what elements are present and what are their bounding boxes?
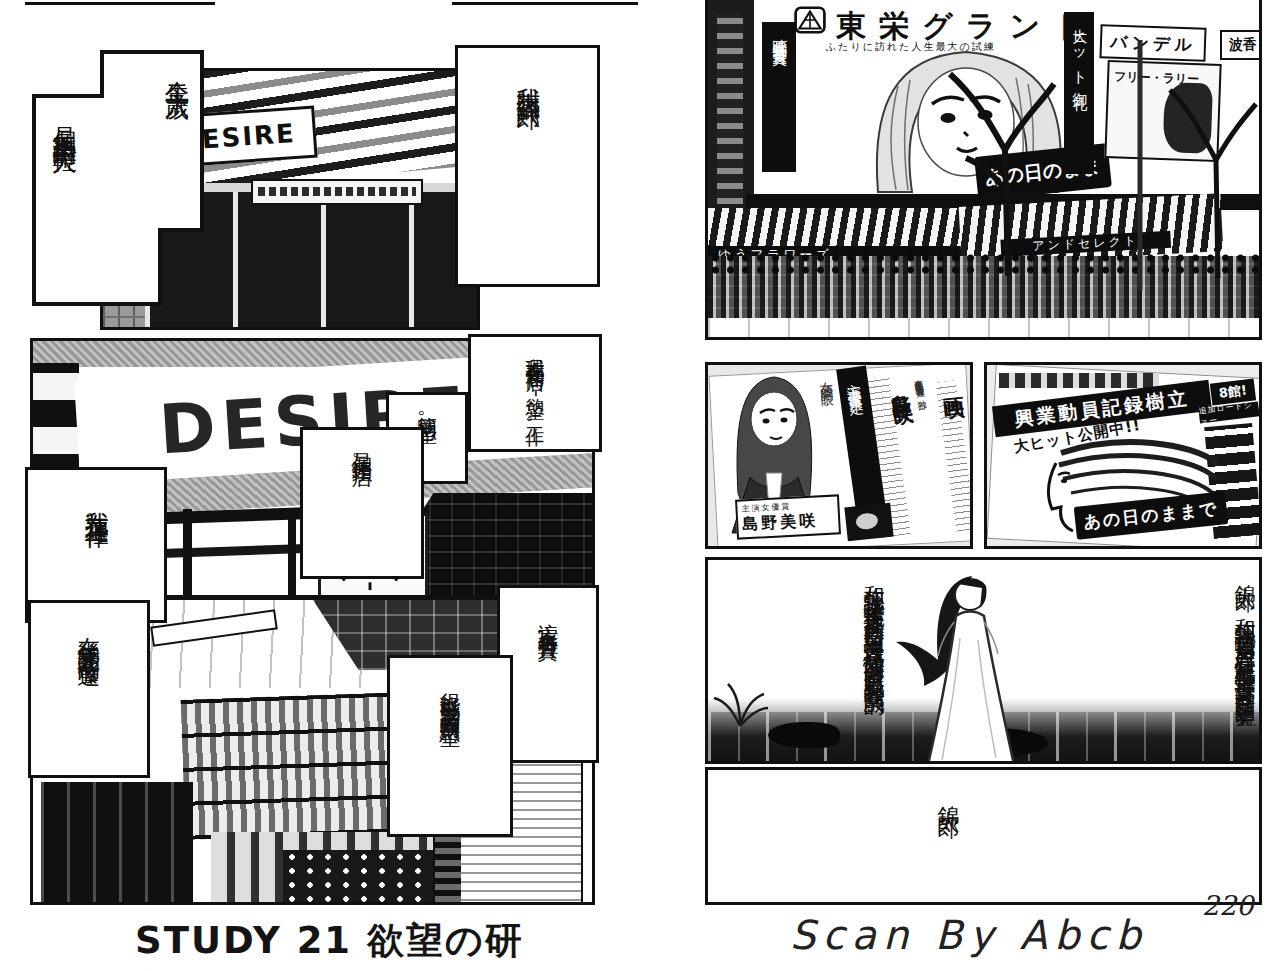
bubble-work1-text: 我現在在便利商店'慾望'工作。 [524,343,546,451]
bubble-name-text: 我叫大江錦六郎。 [514,68,542,210]
panel-kintaro: 錦太郎… [705,767,1262,905]
checker-strip [33,363,79,481]
listings-mini-strip [999,373,1159,388]
banner [251,179,423,205]
trim-line [452,2,638,5]
counter-dark [41,782,193,905]
trim-line [25,2,215,5]
bubble-desire-buy-text: 很能引發消費者的購買慾望。 [438,676,462,802]
speech-bubble-chain: 是個連鎖店。 [300,427,424,579]
post [288,511,296,598]
magazine-rack [283,850,443,904]
bubble-age-text-2: 是個無牽掛的年輕人。 [50,108,78,250]
standing-woman-art [880,568,1060,764]
bubble-age-text-1: 今年二十六歲， [162,62,190,178]
scan-credit: Scan By Abcb [790,912,1150,958]
post [183,509,192,598]
tree-branches-art [888,40,1262,320]
speech-bubble-name: 我叫大江錦六郎。 [455,45,600,287]
speech-bubble-grown: 在幾年之間非常的發達。 [28,600,150,778]
bubble-grown-text: 在幾年之間非常的發達。 [76,619,102,727]
speech-bubble-age: 今年二十六歲， 是個無牽掛的年輕人。 [28,48,208,308]
award-strip: 映画祭金賞受賞 [762,22,796,172]
banner-text-dashes [258,187,416,196]
panel-cinema-street: 東栄グランド 映画祭金賞受賞 ふたりに訪れた人生最大の試練 あの日のまま 大ヒッ… [705,0,1262,340]
roadshow-label: 追加ロードショー [1198,401,1259,423]
award-strip-text: 映画祭金賞受賞 [770,27,787,167]
manga-spread: DESIRE 今年二十六歲， 是個無牽掛的年輕人。 我叫大江錦六郎。 DESIR… [0,0,1280,971]
monologue-left-text: 和你認識之後才發現赤裸裸的自己該如何去表達感情才懂的什麼叫演戲是你教我演戲的。 [714,568,886,726]
bubble-chain-text: 是個連鎖店。 [350,436,374,584]
photo-thumb [844,503,893,542]
panel-shore-monologue: 和你認識之後才發現赤裸裸的自己該如何去表達感情才懂的什麼叫演戲是你教我演戲的。 … [705,557,1262,764]
bubble-name-fits-text: 這家店名符其實， [536,606,560,732]
chapter-title: STUDY 21 欲望の研究 [135,916,555,971]
panel-newspaper-actress: 女優開眼 主演女優賞決定 島野美咲 本年度各種主演女優賞を独占 映画 主演女優賞… [705,362,973,549]
page-number: 220 [1202,890,1254,921]
kintaro-text: 錦太郎… [936,788,961,900]
billboard-logo-icon [794,6,826,34]
headline-box: 主演女優賞 島野美咲 [735,494,841,539]
headline-name: 島野美咲 [742,510,835,536]
building-window [717,14,743,204]
speech-bubble-desire-buy: 很能引發消費者的購買慾望。 [387,655,513,837]
panel-newspaper-ad: 興業動員記録樹立 8館! 追加ロードショー 大ヒット公開中!! あの日のままで [984,362,1262,549]
monologue-right-text: 錦太郎：和你認識之前我是用自尊心在演戲根本毫無演技可言靠的是自己的美貌… [1100,568,1258,726]
street [708,318,1262,340]
bubble-here-text: 我在這裡工作。 [82,492,110,604]
photo-highlight [855,512,879,530]
speech-bubble-work1: 我現在在便利商店'慾望'工作。 [468,334,602,452]
